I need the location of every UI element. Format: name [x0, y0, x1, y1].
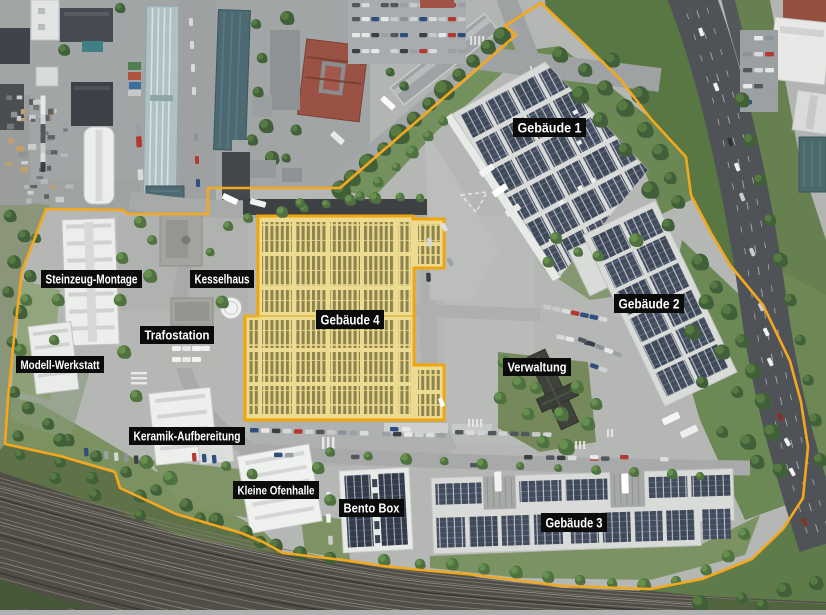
- svg-text:Keramik-Aufbereitung: Keramik-Aufbereitung: [134, 430, 241, 444]
- svg-text:Gebäude 2: Gebäude 2: [619, 296, 680, 311]
- svg-text:Steinzeug-Montage: Steinzeug-Montage: [46, 273, 138, 287]
- svg-text:Modell-Werkstatt: Modell-Werkstatt: [21, 358, 100, 372]
- svg-text:Gebäude 1: Gebäude 1: [518, 120, 582, 135]
- svg-text:Kleine Ofenhalle: Kleine Ofenhalle: [238, 483, 315, 497]
- svg-text:Gebäude 4: Gebäude 4: [321, 312, 380, 327]
- svg-text:Kesselhaus: Kesselhaus: [195, 273, 250, 287]
- svg-text:Bento Box: Bento Box: [344, 502, 400, 516]
- svg-text:Trafostation: Trafostation: [145, 329, 210, 343]
- svg-text:Verwaltung: Verwaltung: [508, 361, 567, 375]
- svg-text:Gebäude 3: Gebäude 3: [546, 515, 603, 530]
